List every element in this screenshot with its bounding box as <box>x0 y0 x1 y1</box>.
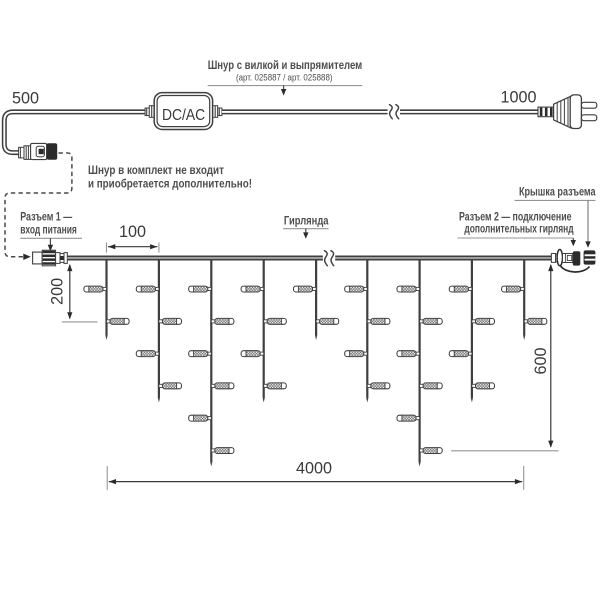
svg-text:(арт. 025887 / арт. 025888): (арт. 025887 / арт. 025888) <box>236 72 333 82</box>
svg-text:600: 600 <box>532 347 550 374</box>
svg-text:Разъем 1 —: Разъем 1 — <box>20 209 72 223</box>
svg-text:Шнур в комплект не входит: Шнур в комплект не входит <box>88 163 224 177</box>
svg-text:200: 200 <box>49 278 67 305</box>
svg-text:4000: 4000 <box>296 459 332 477</box>
svg-text:Крышка разъема: Крышка разъема <box>519 185 596 199</box>
svg-text:Гирлянда: Гирлянда <box>284 213 329 227</box>
svg-text:DC/AC: DC/AC <box>162 107 205 124</box>
svg-text:1000: 1000 <box>500 88 536 106</box>
svg-text:100: 100 <box>119 223 146 241</box>
svg-text:дополнительных гирлянд: дополнительных гирлянд <box>464 222 574 236</box>
svg-text:Шнур с вилкой и выпрямителем: Шнур с вилкой и выпрямителем <box>208 58 363 72</box>
svg-text:500: 500 <box>12 90 39 108</box>
svg-text:вход питания: вход питания <box>20 222 77 236</box>
svg-text:и приобретается дополнительно!: и приобретается дополнительно! <box>88 176 252 190</box>
